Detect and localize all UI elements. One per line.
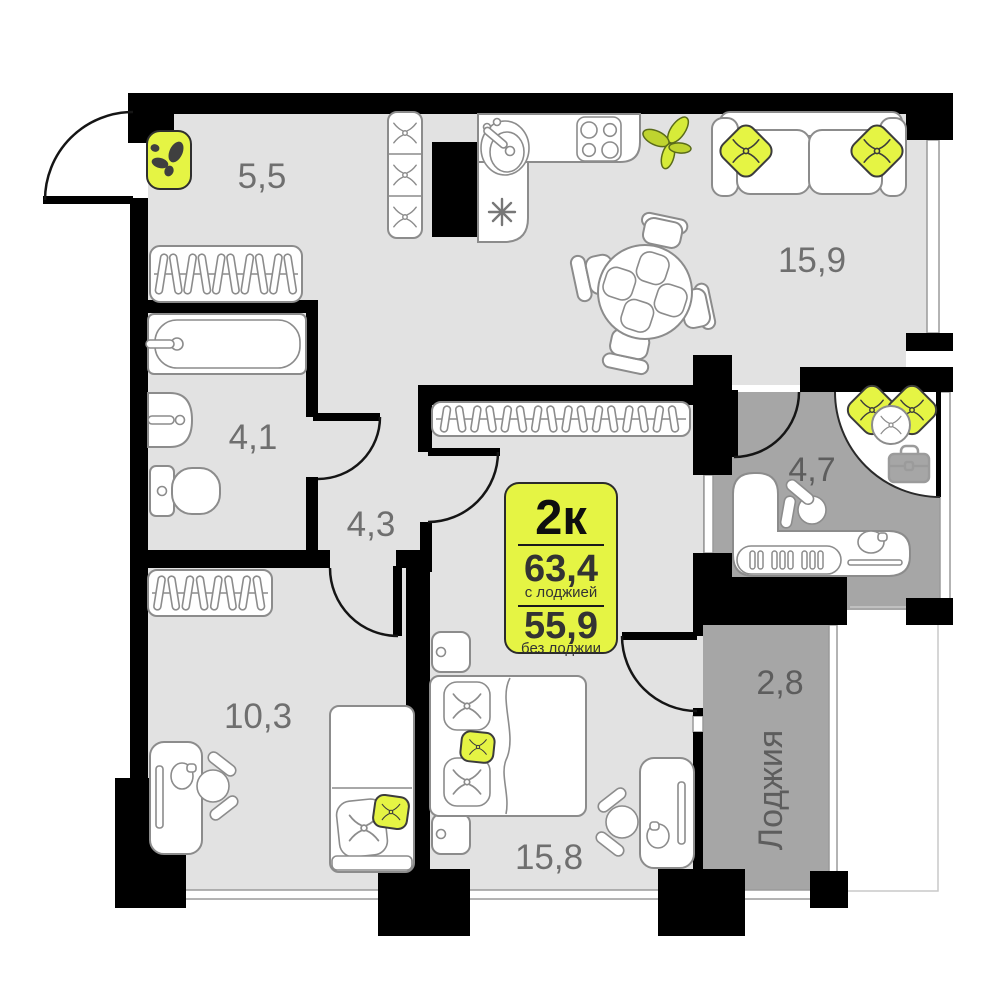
- wall-left: [130, 198, 148, 780]
- room-label-bedroom: 15,8: [515, 838, 583, 877]
- bedroom-loggia-window: [693, 716, 703, 732]
- wall-south-pier-3: [810, 871, 848, 908]
- room-label-living: 15,9: [778, 241, 846, 280]
- wall-right-block-1: [906, 333, 953, 351]
- kitchen-shaft: [432, 142, 478, 237]
- wall-south-pier-2: [658, 869, 745, 936]
- area-with-note: с лоджией: [525, 584, 598, 601]
- office-monitor: [848, 560, 902, 565]
- room-desk: [150, 742, 202, 854]
- office-keyboard: [737, 546, 841, 574]
- washer-asterisk-icon: [489, 199, 515, 225]
- room-label-corridor: 4,3: [347, 505, 396, 544]
- washbasin: [148, 393, 192, 447]
- wall-office-bottom: [732, 577, 847, 625]
- wall-column-a: [693, 355, 732, 475]
- floorplan-page: 2к 63,4 с лоджией 55,9 без лоджии 5,5 15…: [0, 0, 1000, 1000]
- room-label-loggia-area: 2,8: [756, 664, 803, 702]
- area-without-note: без лоджии: [521, 640, 601, 657]
- entrance-door-arc: [45, 112, 133, 200]
- wall-room-top-left: [130, 550, 330, 568]
- room-label-loggia-name: Лоджия: [752, 730, 790, 850]
- wall-top: [130, 93, 953, 114]
- floorplan-svg: 2к 63,4 с лоджией 55,9 без лоджии 5,5 15…: [0, 0, 1000, 1000]
- bathroom-door-leaf: [313, 413, 380, 421]
- hall-wardrobe: [150, 246, 302, 302]
- wall-column-b: [693, 553, 732, 625]
- bed-pillow: [444, 682, 490, 730]
- entrance-icon: [147, 131, 191, 189]
- kitchen-cabinet: [388, 112, 422, 238]
- wall-top-right-block: [906, 93, 953, 140]
- room-label-hallway: 5,5: [238, 157, 287, 196]
- room-label-bathroom: 4,1: [229, 418, 278, 457]
- wall-south-pier-1: [378, 869, 470, 936]
- room-bed: [330, 706, 414, 872]
- loggia-door-leaf: [622, 632, 697, 640]
- office-glazing: [940, 392, 950, 610]
- toilet: [150, 466, 220, 516]
- apartment-type: 2к: [535, 491, 587, 545]
- stove-icon: [577, 117, 621, 161]
- bedroom-office-glass: [704, 475, 713, 553]
- office-door-leaf: [730, 390, 738, 457]
- sofa: [712, 112, 907, 196]
- area-badge: 2к 63,4 с лоджией 55,9 без лоджии: [505, 483, 617, 657]
- bed-pillow-accent: [372, 794, 410, 830]
- wall-bathroom-right-upper: [306, 313, 318, 417]
- bed-pillow: [444, 758, 490, 806]
- bed-pillow-accent: [460, 730, 496, 763]
- wall-bedroom-west-mid: [420, 522, 432, 572]
- bedroom-desk: [640, 758, 694, 868]
- loggia-glazing: [829, 625, 837, 892]
- room-label-room: 10,3: [224, 697, 292, 736]
- entrance-door-leaf: [43, 196, 133, 204]
- bedroom-door-leaf: [428, 448, 500, 456]
- bathtub: [146, 314, 306, 374]
- wall-right-block-2: [906, 598, 953, 625]
- room-label-office: 4,7: [788, 451, 835, 489]
- exterior-notch: [906, 351, 953, 367]
- double-bed: [430, 676, 586, 816]
- office-round-pillow: [872, 406, 910, 444]
- room-door-leaf: [393, 566, 402, 636]
- room-wardrobe: [148, 570, 272, 616]
- living-window: [927, 140, 939, 333]
- exterior-outline: [836, 607, 938, 891]
- bedroom-wardrobe: [432, 402, 690, 436]
